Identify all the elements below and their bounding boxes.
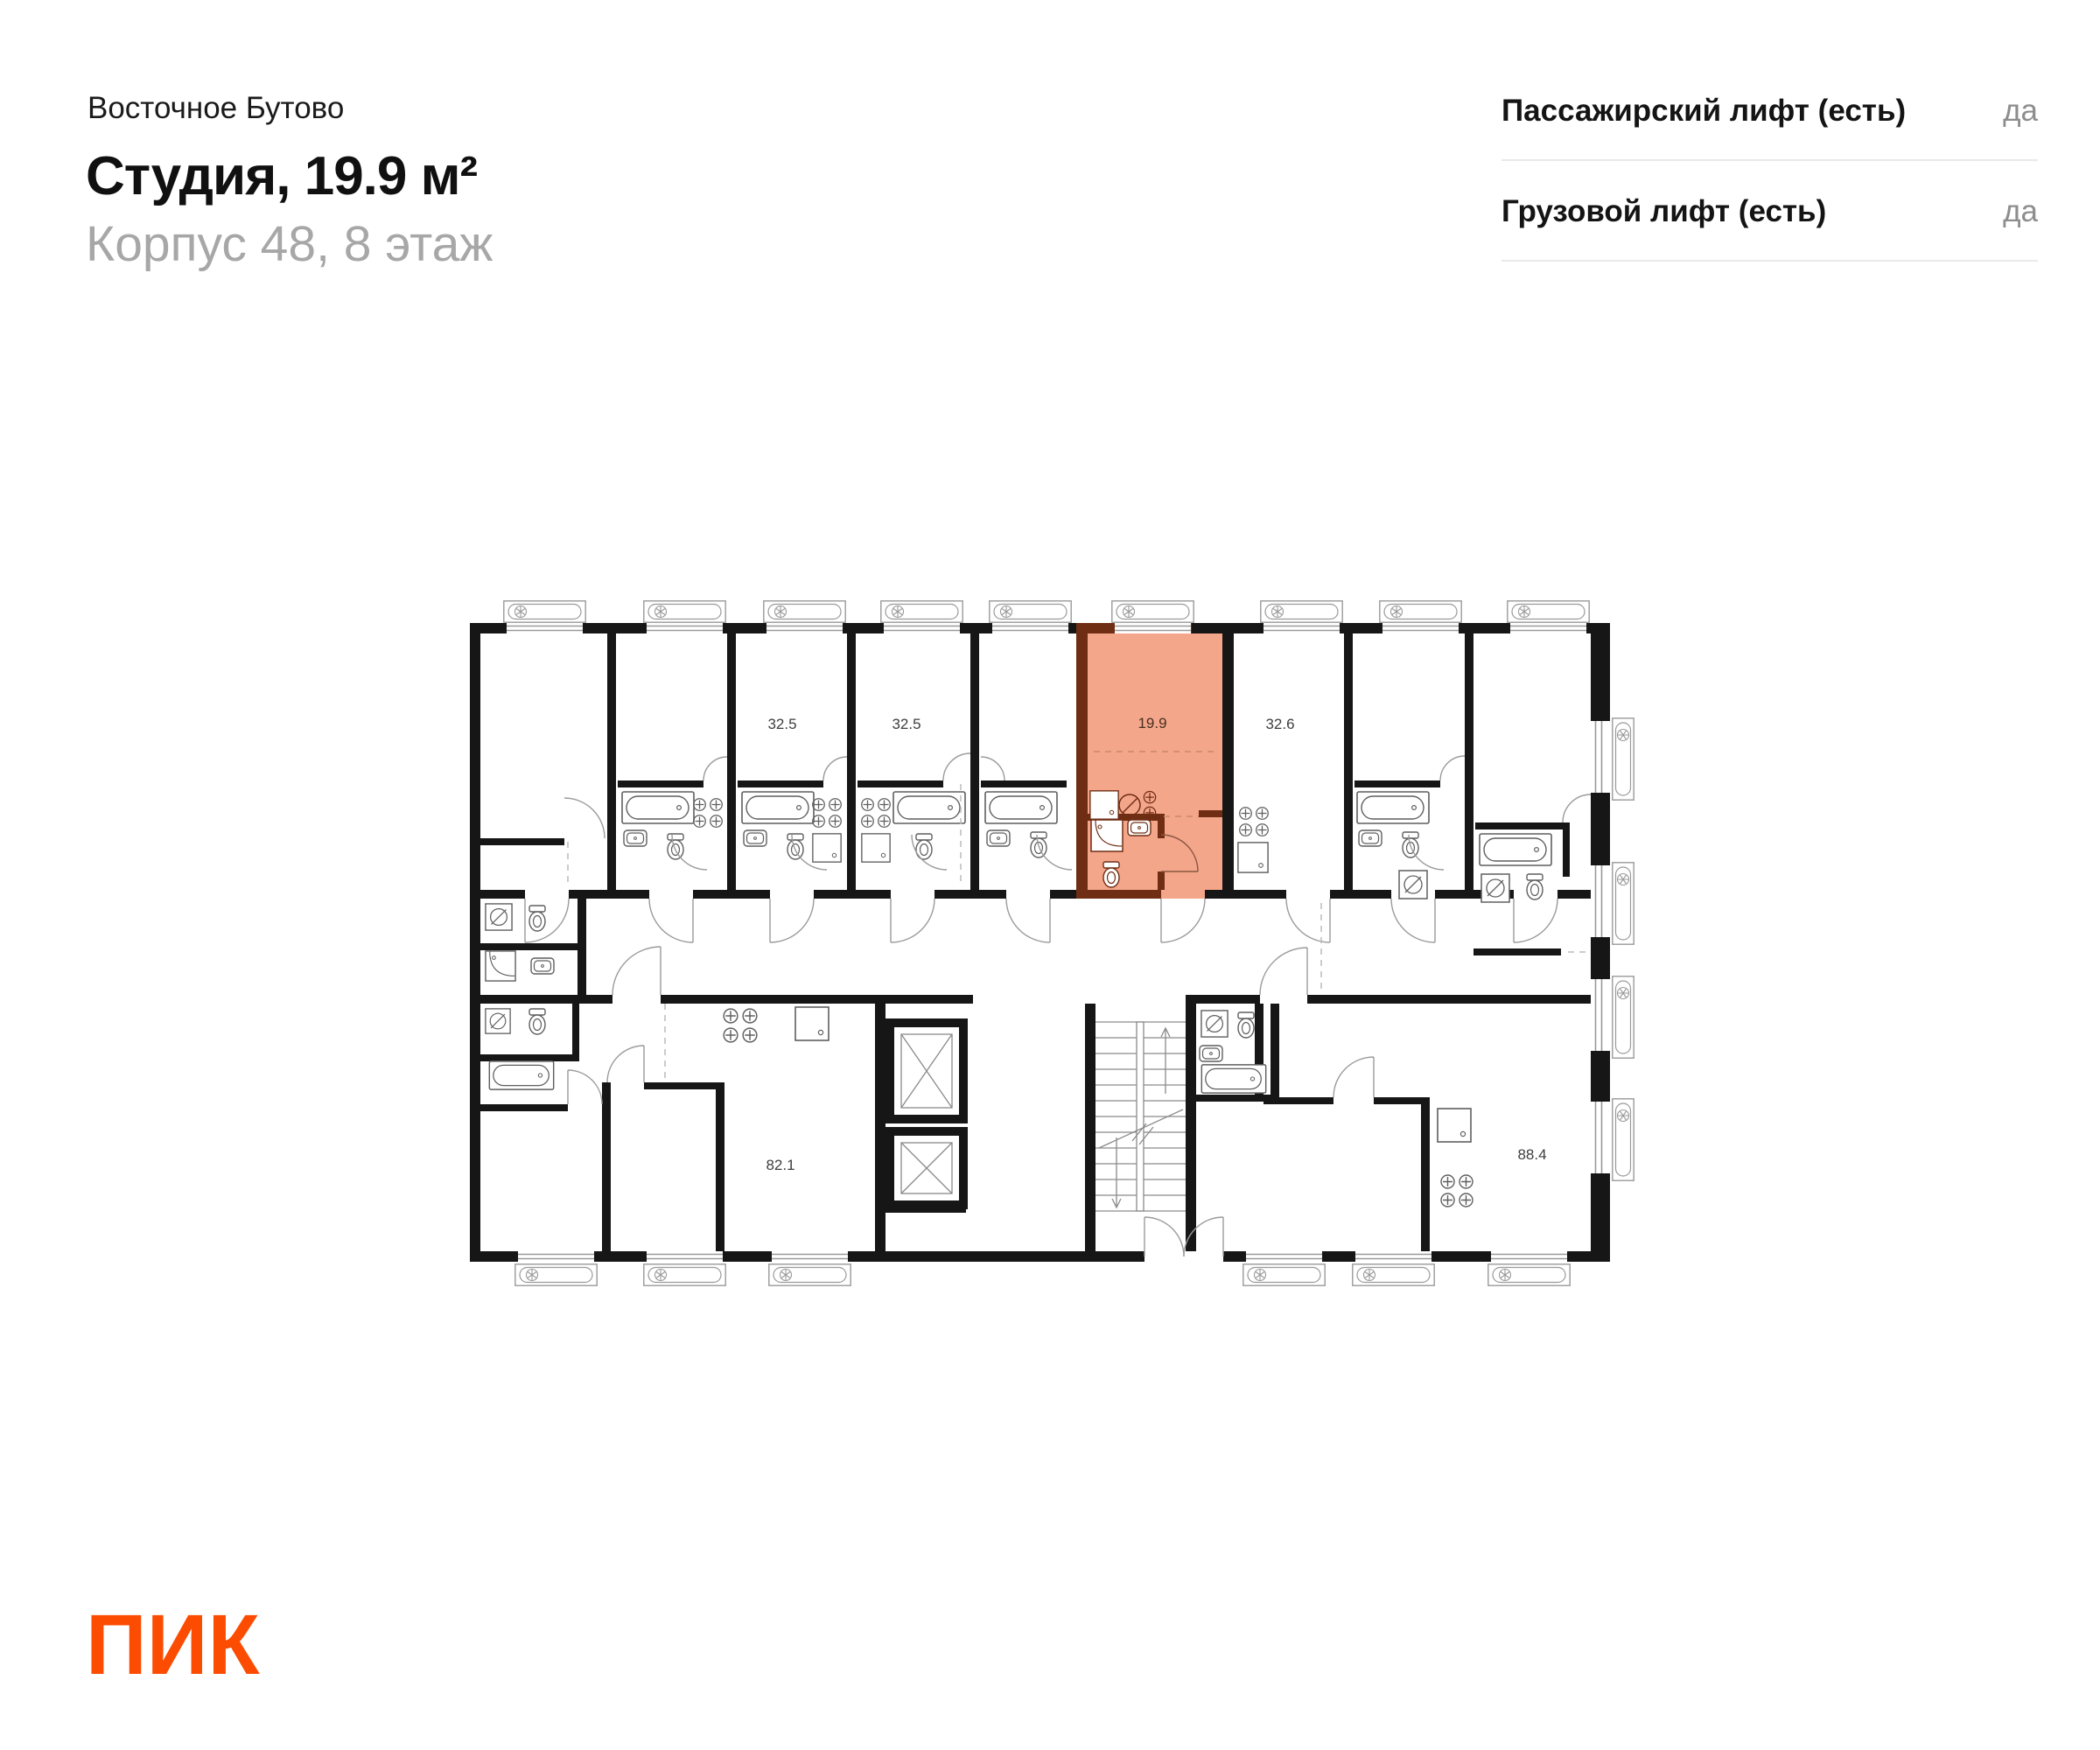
floor-plan: 32.5 32.5 19.9 32.6 82.1 88.4: [464, 595, 1671, 1304]
spec-label: Пассажирский лифт (есть): [1501, 93, 1906, 130]
elevator-shafts: [885, 1018, 968, 1209]
staircase: [1095, 1022, 1186, 1211]
area-label-32-5-a: 32.5: [767, 716, 796, 732]
spec-value: да: [2003, 193, 2038, 231]
spec-label: Грузовой лифт (есть): [1501, 193, 1826, 231]
pik-logo[interactable]: ПИК: [86, 1596, 260, 1694]
area-label-32-5-b: 32.5: [892, 716, 920, 732]
spec-value: да: [2003, 93, 2038, 130]
area-label-studio: 19.9: [1137, 715, 1166, 731]
facade-ac-boxes: [504, 601, 1634, 1285]
spec-row-passenger-lift: Пассажирский лифт (есть) да: [1501, 93, 2038, 161]
page-title: Студия, 19.9 м²: [86, 145, 477, 207]
area-label-32-6: 32.6: [1265, 716, 1294, 732]
windows: [507, 623, 1610, 1262]
spec-row-cargo-lift: Грузовой лифт (есть) да: [1501, 193, 2038, 262]
page: { "header": { "project": "Восточное Буто…: [0, 0, 2100, 1750]
area-label-82-1: 82.1: [766, 1157, 794, 1173]
page-subtitle: Корпус 48, 8 этаж: [86, 215, 493, 273]
area-label-88-4: 88.4: [1517, 1146, 1546, 1163]
project-name: Восточное Бутово: [87, 91, 344, 126]
walls: [470, 623, 1610, 1262]
door-arcs: [525, 753, 1591, 1256]
highlighted-unit[interactable]: [1088, 633, 1222, 899]
